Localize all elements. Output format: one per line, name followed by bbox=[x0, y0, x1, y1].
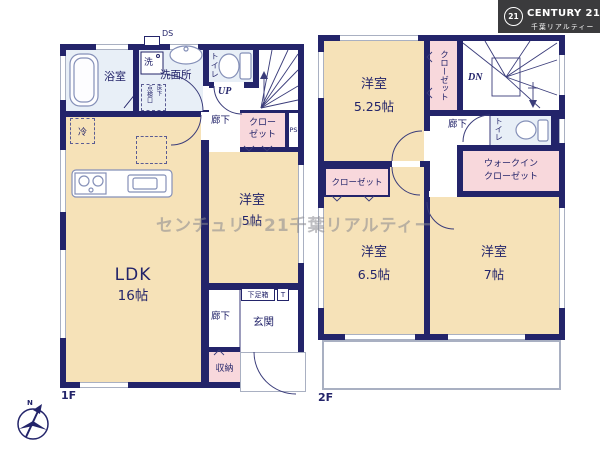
shoe-box-label: 下足箱 bbox=[248, 290, 269, 300]
bedroom525-size-label: 5.25帖 bbox=[354, 100, 394, 114]
closet-label-1f: クロー ゼット bbox=[240, 113, 285, 147]
century21-brand: CENTURY 21 bbox=[527, 8, 600, 19]
floor-hatch-label: 点検口 bbox=[145, 85, 154, 110]
duct-space-box bbox=[144, 36, 160, 46]
floor-hatch-box: 点検口 床下 bbox=[141, 84, 166, 111]
bedroom5-label: 洋室 bbox=[239, 194, 265, 209]
toilet-label-1f: トイレ bbox=[210, 52, 219, 86]
bedroom7-2f bbox=[430, 197, 559, 334]
balcony-door bbox=[345, 334, 415, 340]
window bbox=[170, 44, 198, 50]
watermark-text: センチュリー21千葉リアルティー bbox=[156, 211, 432, 236]
floor1-label: 1F bbox=[61, 390, 76, 403]
ldk-1f bbox=[66, 117, 201, 382]
bedroom7-door-opening bbox=[429, 191, 455, 197]
window bbox=[559, 119, 565, 143]
washroom-door-opening bbox=[203, 86, 209, 110]
compass-north-label: N bbox=[27, 399, 33, 407]
floor2-label: 2F bbox=[318, 392, 333, 405]
balcony-2f bbox=[322, 340, 561, 390]
ldk-label: LDK bbox=[115, 266, 152, 286]
window bbox=[60, 56, 66, 100]
bedroom525-door-opening bbox=[424, 131, 430, 161]
fridge-label: 冷 bbox=[78, 125, 87, 138]
window bbox=[318, 52, 324, 98]
hallway-lower-2f bbox=[430, 145, 457, 197]
balcony-door bbox=[448, 334, 525, 340]
window bbox=[340, 35, 418, 41]
window bbox=[60, 250, 66, 338]
shoe-t-label: T bbox=[281, 291, 285, 299]
entrance-porch bbox=[240, 352, 306, 392]
bedroom525-label: 洋室 bbox=[361, 78, 387, 93]
fridge-box: 冷 bbox=[70, 118, 95, 144]
bedroom65-door-opening bbox=[392, 161, 420, 167]
window bbox=[559, 55, 565, 95]
floorplan-canvas: 点検口 床下 冷 下足箱 T bbox=[0, 0, 600, 450]
compass-icon bbox=[18, 404, 48, 439]
walkin-closet-label: ウォークイン クローゼット bbox=[463, 151, 559, 191]
window bbox=[96, 44, 128, 50]
bedroom65-label: 洋室 bbox=[361, 246, 387, 261]
century21-company: 千葉リアルティー bbox=[531, 21, 595, 31]
toilet-label-2f: トイレ bbox=[494, 117, 503, 145]
window bbox=[80, 382, 128, 388]
washroom-label: 洗面所 bbox=[160, 69, 192, 81]
hallway-lower-label-1f: 廊下 bbox=[211, 312, 230, 323]
window bbox=[60, 150, 66, 212]
stairs-up-label: UP bbox=[218, 86, 231, 98]
shoe-box: 下足箱 bbox=[241, 288, 275, 301]
shoe-t-box: T bbox=[277, 288, 289, 301]
bathroom-label: 浴室 bbox=[104, 71, 126, 84]
bedroom7-size-label: 7帖 bbox=[484, 268, 504, 282]
century21-logo: 21 CENTURY 21 千葉リアルティー bbox=[498, 0, 600, 33]
washer-label: 洗 bbox=[144, 58, 153, 68]
duct-space-label: DS bbox=[162, 29, 173, 38]
century21-badge-icon: 21 bbox=[504, 7, 523, 26]
ldk-size-label: 16帖 bbox=[118, 289, 149, 305]
stairs-down-label: DN bbox=[468, 72, 482, 84]
ldk-door-opening bbox=[201, 112, 209, 140]
window bbox=[559, 208, 565, 308]
entrance-label: 玄関 bbox=[253, 316, 274, 328]
closet2-label-2f: クローゼット bbox=[324, 167, 390, 197]
bedroom7-label: 洋室 bbox=[481, 246, 507, 261]
hallway-label-2f: 廊下 bbox=[448, 120, 467, 131]
closet-vertical-label-2f: クローゼット bbox=[430, 41, 457, 110]
hallway-upper-label-1f: 廊下 bbox=[211, 116, 230, 127]
pantry-box bbox=[136, 136, 167, 164]
pipe-space-label: PS bbox=[289, 113, 298, 147]
underfloor-label: 床下 bbox=[155, 85, 163, 110]
storage-label: 収納 bbox=[209, 352, 240, 382]
bedroom65-size-label: 6.5帖 bbox=[358, 268, 390, 282]
